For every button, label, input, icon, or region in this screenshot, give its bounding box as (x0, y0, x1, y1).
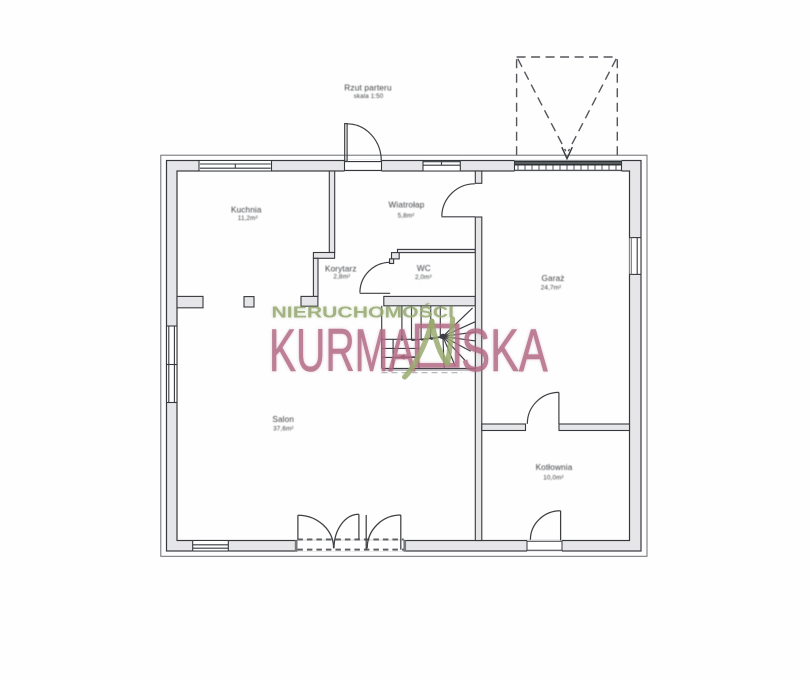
svg-text:Rzut parteru: Rzut parteru (344, 82, 392, 92)
svg-text:Kuchnia: Kuchnia (231, 205, 262, 214)
svg-text:37,6m²: 37,6m² (273, 426, 294, 433)
svg-text:Korytarz: Korytarz (325, 265, 357, 274)
svg-text:Garaż: Garaż (541, 274, 564, 283)
svg-text:Wiatrołap: Wiatrołap (389, 200, 425, 209)
svg-text:2,0m²: 2,0m² (415, 274, 432, 281)
svg-text:WC: WC (417, 264, 431, 273)
svg-text:Salon: Salon (272, 415, 294, 424)
svg-text:2,8m²: 2,8m² (333, 274, 350, 281)
svg-text:5,8m²: 5,8m² (398, 213, 415, 220)
svg-text:skala 1:50: skala 1:50 (354, 93, 384, 100)
svg-text:SKA: SKA (461, 316, 548, 384)
svg-text:11,2m²: 11,2m² (238, 215, 258, 222)
svg-text:Kotłownia: Kotłownia (536, 463, 573, 472)
svg-text:24,7m²: 24,7m² (541, 285, 562, 292)
svg-text:KURMA: KURMA (269, 316, 416, 384)
svg-text:10,0m²: 10,0m² (543, 475, 564, 482)
